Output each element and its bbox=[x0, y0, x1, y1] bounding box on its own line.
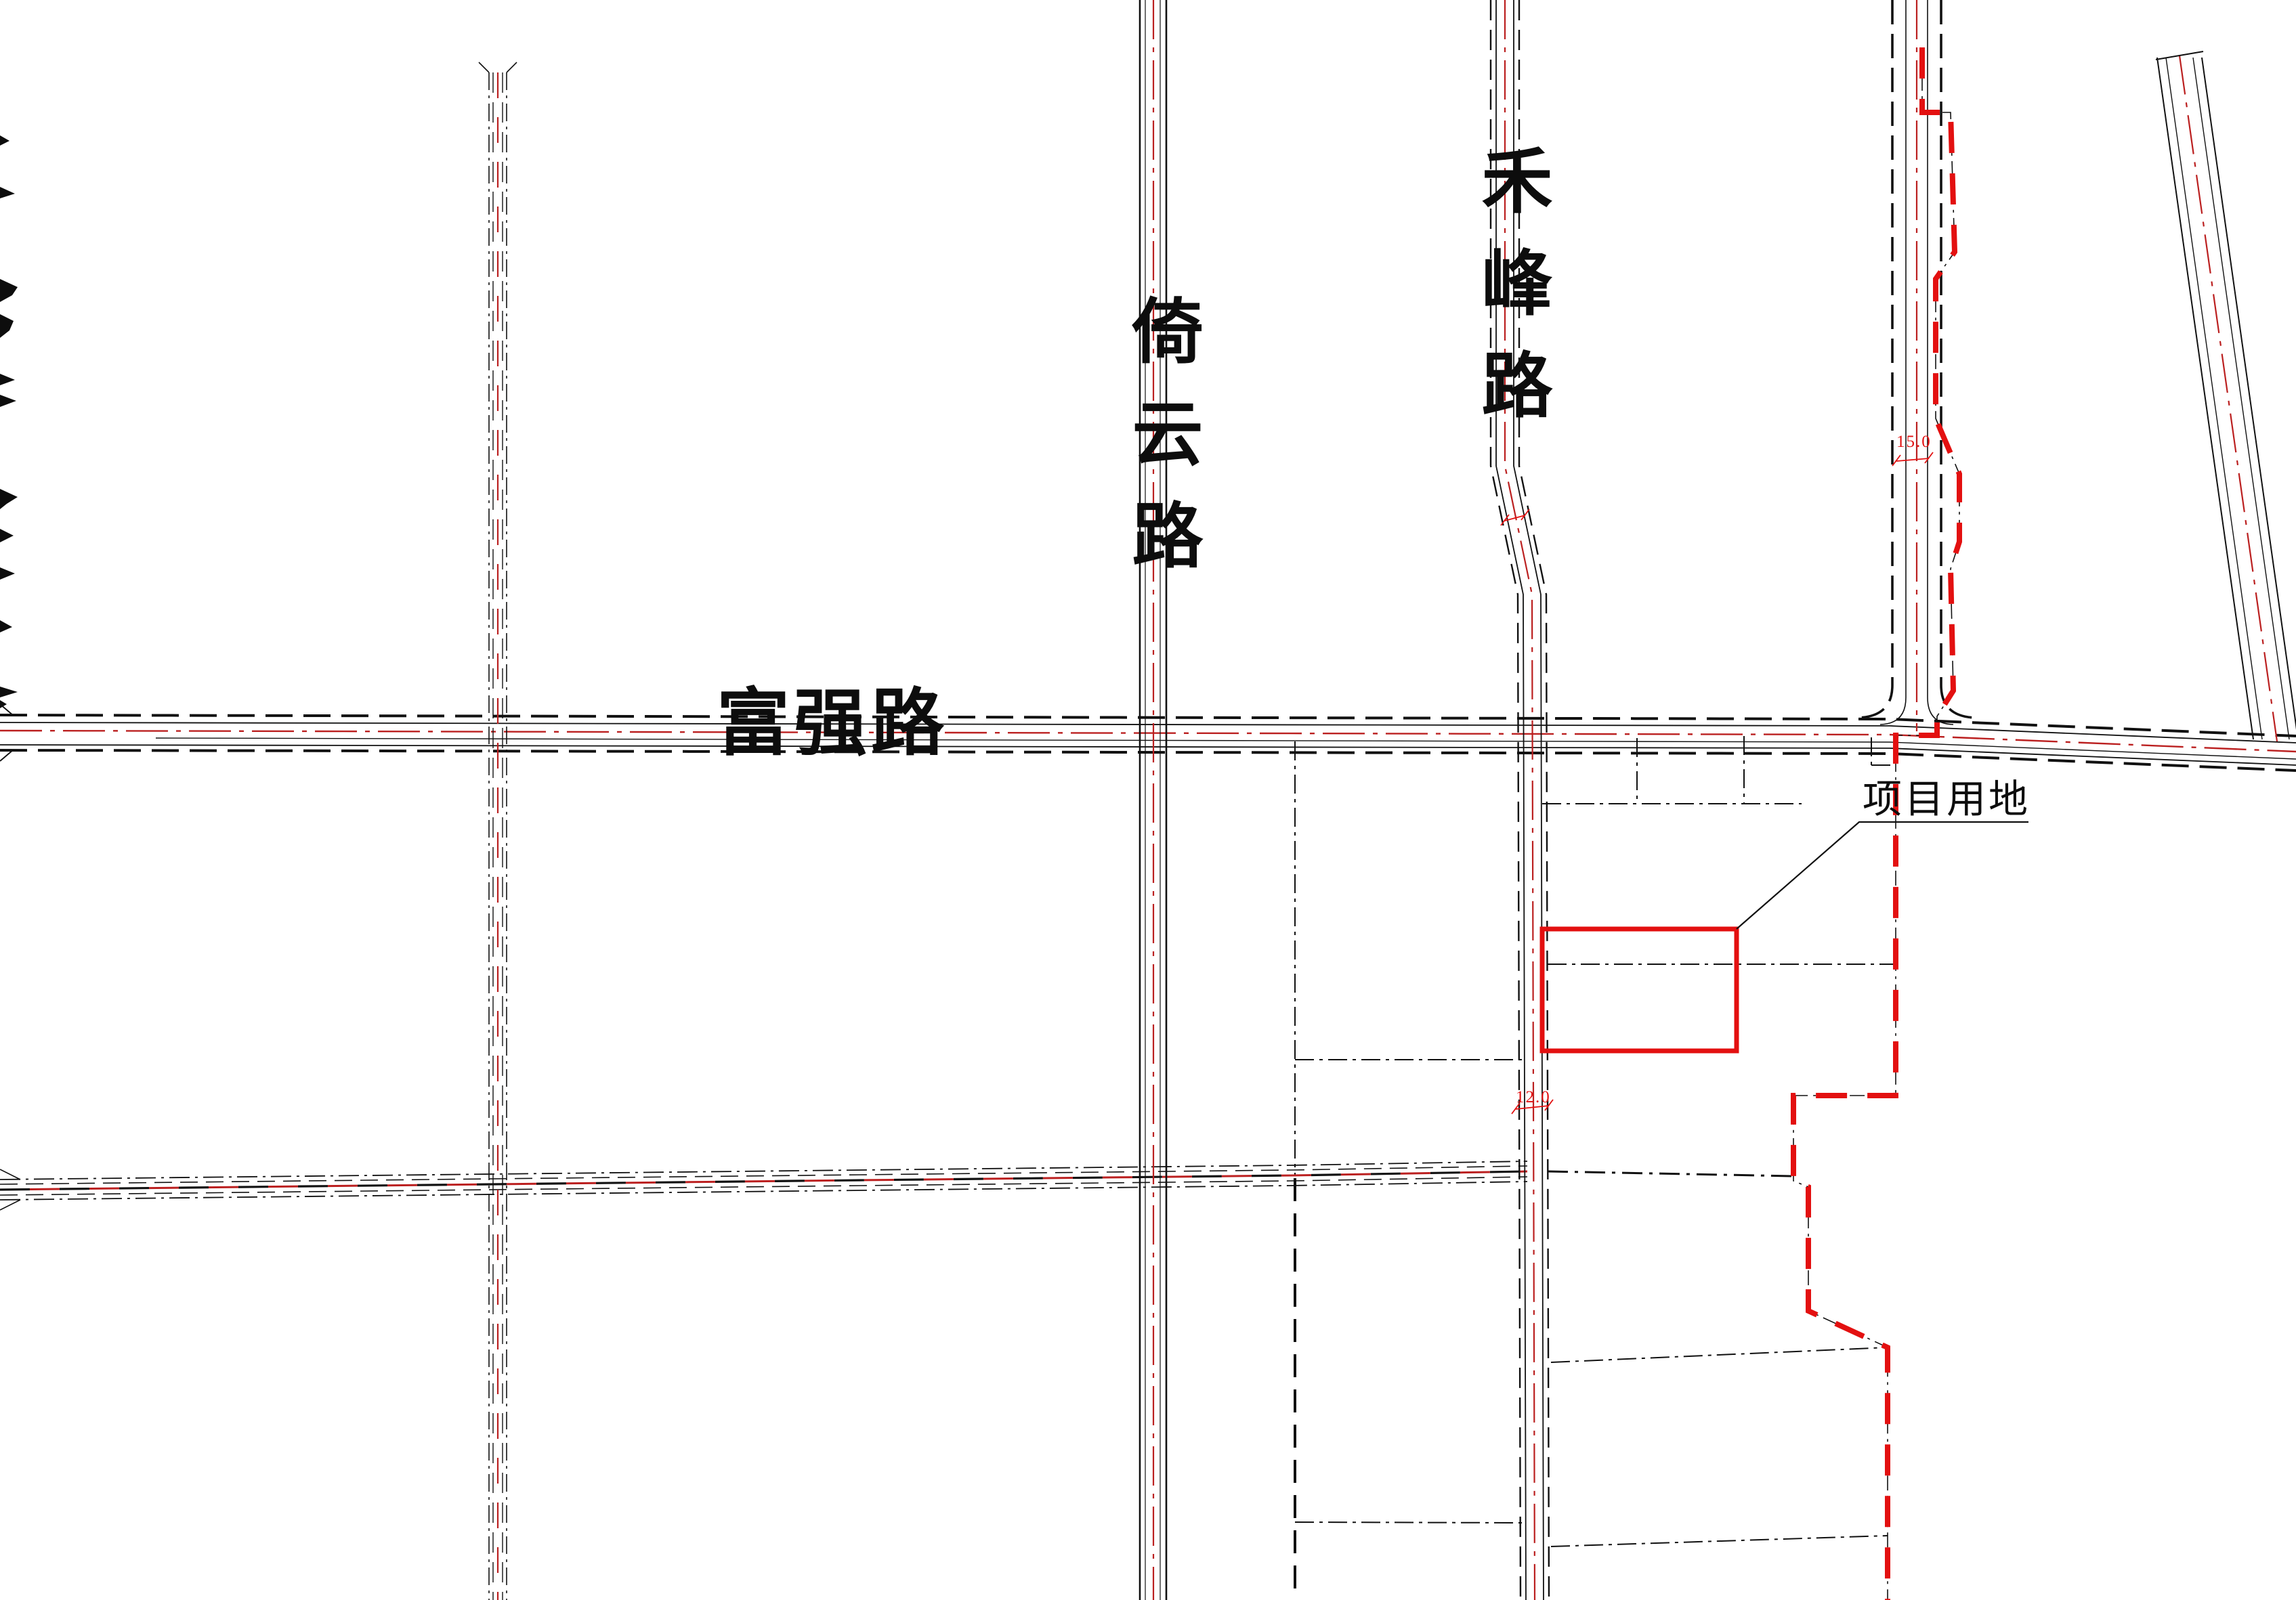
road-fuqiang-centerline bbox=[0, 731, 2296, 752]
road-diagonal-northeast bbox=[2156, 51, 2296, 741]
dim-label-15: 15.0 bbox=[1896, 433, 1932, 450]
road-fuqiang-edge-south-heavy bbox=[0, 750, 2296, 771]
road-planned-west-vertical bbox=[479, 62, 517, 1600]
parcel-line-h2275 bbox=[1551, 1536, 1888, 1547]
site-plan-canvas: 富强路 倚云路 禾峰路 项目用地 15.0 12.0 bbox=[0, 0, 2296, 1600]
project-boundary-red-dashes bbox=[1793, 47, 1959, 1600]
dim15-line bbox=[1896, 458, 1929, 461]
dim15-tick-right bbox=[1925, 452, 1933, 463]
roadv5-edge-west bbox=[2157, 58, 2253, 739]
road2-west-end-flare-top bbox=[0, 1169, 20, 1180]
project-site bbox=[1542, 822, 2028, 1051]
road-fuqiang bbox=[0, 704, 2296, 771]
road-north-east-vertical bbox=[1858, 0, 1975, 731]
roadv1-top-flare-left bbox=[479, 62, 489, 72]
dim-label-12: 12.0 bbox=[1516, 1089, 1551, 1106]
road2-west-end-flare-bottom bbox=[0, 1200, 20, 1210]
road-label-yiyun: 倚云路 bbox=[1126, 294, 1197, 601]
road-label-fuqiang: 富强路 bbox=[717, 688, 948, 761]
site-label: 项目用地 bbox=[1863, 780, 2031, 819]
site-label-leader-line bbox=[1737, 822, 2028, 929]
project-boundary bbox=[1793, 47, 1959, 1600]
roadv4-edge-west-heavy bbox=[1858, 0, 1892, 718]
roadv1-top-flare-right bbox=[507, 62, 517, 72]
parcel-line-h2005 bbox=[1551, 1347, 1888, 1362]
roadv5-lane-east bbox=[2193, 58, 2289, 739]
road2-east-extension-centerline bbox=[1548, 1171, 1793, 1176]
roadv4-edge-east-heavy bbox=[1941, 0, 1975, 718]
road-label-hefeng: 禾峰路 bbox=[1475, 144, 1546, 450]
roadv5-centerline bbox=[2180, 56, 2277, 741]
parcel-boundary-lines bbox=[1295, 736, 1894, 1600]
clipped-left-edge-road-name-fragments bbox=[0, 135, 18, 708]
parcel-line-h2248 bbox=[1295, 1522, 1526, 1523]
roadv5-lane-west bbox=[2166, 58, 2262, 739]
roadv5-edge-east bbox=[2202, 58, 2296, 739]
project-site-rectangle bbox=[1542, 929, 1737, 1051]
road-yiyun bbox=[1140, 0, 1166, 1600]
road2-edge-south bbox=[0, 1182, 1527, 1200]
road-planned-south bbox=[0, 1161, 1527, 1210]
